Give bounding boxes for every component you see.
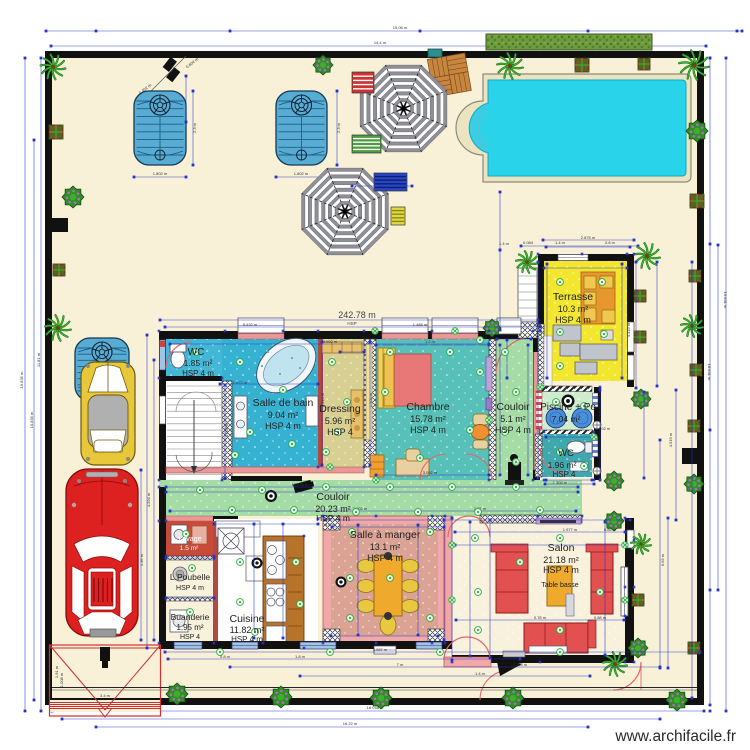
svg-text:HSP 4 m: HSP 4 m: [495, 425, 531, 435]
svg-text:1.4 m: 1.4 m: [499, 241, 510, 246]
svg-text:HSP 4: HSP 4: [327, 427, 353, 437]
svg-text:6.63 m: 6.63 m: [660, 553, 665, 566]
svg-text:HSP 4 m: HSP 4 m: [316, 513, 350, 523]
svg-text:Dressing: Dressing: [319, 403, 361, 415]
svg-text:HSP 4 m: HSP 4 m: [176, 585, 204, 592]
svg-text:7.04 m²: 7.04 m²: [552, 414, 581, 424]
svg-text:1.008 m: 1.008 m: [59, 672, 64, 687]
svg-text:Chambre: Chambre: [406, 401, 449, 413]
svg-text:11.82 m²: 11.82 m²: [230, 625, 265, 635]
svg-text:Table basse: Table basse: [541, 582, 578, 589]
svg-text:15.78 m²: 15.78 m²: [410, 414, 446, 424]
svg-text:1.35 m: 1.35 m: [139, 553, 144, 566]
svg-text:5.96 m²: 5.96 m²: [325, 416, 356, 426]
svg-text:1.504 m: 1.504 m: [368, 392, 373, 407]
svg-text:1.4 m: 1.4 m: [555, 240, 566, 245]
svg-text:18.841 m: 18.841 m: [707, 364, 712, 381]
svg-text:1.96 m²: 1.96 m²: [548, 460, 577, 470]
svg-text:15.06 m: 15.06 m: [393, 25, 408, 30]
svg-text:1.4 m: 1.4 m: [475, 671, 486, 676]
svg-text:19.841 m: 19.841 m: [723, 292, 728, 309]
svg-text:4.294 m: 4.294 m: [146, 492, 151, 507]
svg-text:19.835 m: 19.835 m: [19, 371, 24, 388]
svg-text:10.835 m: 10.835 m: [29, 411, 34, 428]
svg-text:4.419 m: 4.419 m: [626, 322, 631, 337]
svg-text:3.4 m: 3.4 m: [100, 693, 111, 698]
svg-text:1.488 m: 1.488 m: [413, 322, 428, 327]
svg-text:10.835 m: 10.835 m: [292, 482, 309, 487]
svg-text:Cuisine: Cuisine: [229, 613, 264, 625]
svg-text:0.78 m: 0.78 m: [534, 615, 547, 620]
svg-text:1.972 m: 1.972 m: [233, 380, 248, 385]
svg-text:Lavage: Lavage: [179, 536, 202, 543]
svg-text:13.1 m²: 13.1 m²: [370, 542, 401, 552]
svg-text:0.88 m: 0.88 m: [594, 615, 607, 620]
svg-text:1.5 m²: 1.5 m²: [180, 545, 199, 552]
svg-text:Couloir: Couloir: [496, 401, 530, 413]
svg-text:1.802 m: 1.802 m: [153, 171, 168, 176]
svg-text:HSP 4 m: HSP 4 m: [410, 425, 446, 435]
svg-text:2.875 m: 2.875 m: [581, 235, 596, 240]
svg-text:Buanderie: Buanderie: [171, 612, 210, 622]
svg-text:3.062 m: 3.062 m: [423, 470, 438, 475]
svg-text:3.002 m: 3.002 m: [323, 339, 338, 344]
svg-text:Couloir: Couloir: [316, 491, 350, 503]
svg-text:0.084: 0.084: [523, 240, 534, 245]
svg-text:5.432 m: 5.432 m: [243, 322, 258, 327]
svg-text:1.302 m: 1.302 m: [553, 480, 568, 485]
svg-text:WC: WC: [188, 347, 205, 358]
svg-text:4.064 m: 4.064 m: [224, 422, 229, 437]
svg-text:HSP 4 m: HSP 4 m: [231, 635, 263, 644]
svg-text:WC: WC: [558, 448, 574, 459]
svg-text:1.2 m: 1.2 m: [425, 339, 436, 344]
svg-text:1.95 m²: 1.95 m²: [176, 623, 203, 632]
svg-text:www.archifacile.fr: www.archifacile.fr: [614, 728, 736, 745]
svg-text:Salon: Salon: [548, 542, 575, 554]
svg-text:7 m: 7 m: [397, 662, 404, 667]
svg-text:1.977 m: 1.977 m: [563, 527, 578, 532]
svg-text:4.519 m: 4.519 m: [668, 432, 673, 447]
svg-text:2.3 m: 2.3 m: [192, 122, 197, 133]
svg-text:14.4 m: 14.4 m: [374, 40, 387, 45]
svg-text:5.1 m²: 5.1 m²: [500, 414, 526, 424]
svg-text:3.087 m: 3.087 m: [373, 647, 388, 652]
svg-text:HSP 4 m: HSP 4 m: [555, 315, 591, 325]
svg-text:10.3 m²: 10.3 m²: [558, 304, 589, 314]
svg-text:16.22 m: 16.22 m: [343, 721, 358, 726]
svg-text:11.81 m: 11.81 m: [36, 352, 41, 367]
svg-text:0.712 m: 0.712 m: [513, 662, 528, 667]
svg-text:242.78 m: 242.78 m: [338, 310, 376, 320]
svg-text:HSP: HSP: [347, 321, 356, 326]
svg-text:Salle à manger: Salle à manger: [350, 529, 421, 541]
svg-text:HSP 4: HSP 4: [553, 470, 577, 479]
svg-text:0.8 m: 0.8 m: [605, 240, 616, 245]
svg-text:HSP 4 m: HSP 4 m: [265, 421, 301, 431]
svg-text:0.85 m: 0.85 m: [604, 527, 617, 532]
svg-text:9.04 m²: 9.04 m²: [268, 410, 299, 420]
svg-text:1.802 m: 1.802 m: [294, 171, 309, 176]
svg-text:HSP 4 m: HSP 4 m: [182, 369, 214, 378]
svg-text:Piscine + Po: Piscine + Po: [540, 402, 596, 413]
svg-text:L.Poubelle: L.Poubelle: [170, 572, 210, 582]
svg-text:Terrasse: Terrasse: [553, 291, 593, 303]
svg-text:HSP 4: HSP 4: [180, 634, 200, 641]
svg-text:HSP 4 m: HSP 4 m: [367, 553, 403, 563]
svg-text:HSP 4 m: HSP 4 m: [543, 565, 579, 575]
svg-text:Salle de bain: Salle de bain: [253, 397, 314, 409]
svg-text:1.8 m: 1.8 m: [295, 654, 306, 659]
svg-text:21.18 m²: 21.18 m²: [543, 555, 579, 565]
svg-text:1.85 m²: 1.85 m²: [184, 358, 213, 368]
svg-text:1.102 m: 1.102 m: [596, 426, 611, 431]
svg-text:2.3 m: 2.3 m: [336, 122, 341, 133]
